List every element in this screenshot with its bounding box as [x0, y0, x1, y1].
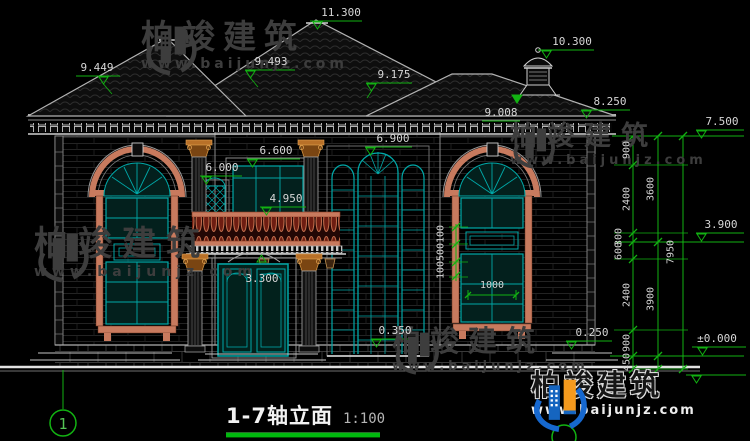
level-balcony-rail: 4.950 — [269, 192, 302, 205]
level-cornice-top: 7.500 — [705, 115, 738, 128]
dim-chain-2400b: 2400 — [622, 283, 633, 307]
dim-band-100a: 100 — [436, 225, 447, 243]
dim-band-100b: 100 — [436, 261, 447, 279]
window-sill — [98, 326, 176, 333]
drawing-title-block: 1-7轴立面1:100 — [226, 400, 385, 438]
drawing-title: 1-7轴立面 — [226, 404, 333, 428]
upper-center-window — [226, 158, 316, 218]
level-main-ridge: 11.300 — [321, 6, 361, 19]
level-right-eave: 8.250 — [593, 95, 626, 108]
level-right-roof-ridge: 9.175 — [377, 68, 410, 81]
left-roof — [28, 38, 246, 116]
entry-door — [212, 253, 296, 359]
site-logo: 柏竣建筑 www.baijunjz.com — [531, 371, 749, 418]
right-quoins — [587, 136, 595, 345]
level-porch-arch: 3.300 — [245, 272, 278, 285]
dim-window-width: 1000 — [480, 280, 504, 291]
level-left-plinth: 0.350 — [378, 324, 411, 337]
level-lattice-window: 6.000 — [205, 161, 238, 174]
brand-logo-icon — [531, 371, 587, 437]
level-upper-window: 6.600 — [259, 144, 292, 157]
dim-chain-900a: 900 — [622, 141, 633, 159]
level-center-roof: 9.493 — [254, 55, 287, 68]
drawing-scale: 1:100 — [343, 411, 385, 427]
level-right-plinth: 0.250 — [575, 326, 608, 339]
level-cupola-top: 10.300 — [552, 35, 592, 48]
cad-viewport: 柏竣建筑 www.baijunjz.com 柏竣建筑 www.baijunjz.… — [0, 0, 750, 441]
level-ground: ±0.000 — [697, 332, 737, 345]
level-right-roof-eave: 9.008 — [484, 106, 517, 119]
level-left-roof: 9.449 — [80, 61, 113, 74]
dim-chain-2400a: 2400 — [622, 187, 633, 211]
level-stair-arch: 6.900 — [376, 132, 409, 145]
dim-band-500: 500 — [436, 243, 447, 261]
dim-chain-3600: 3600 — [646, 177, 657, 201]
dim-chain-3900: 3900 — [646, 287, 657, 311]
left-quoins — [55, 136, 63, 345]
keystone — [132, 143, 143, 156]
title-underline — [226, 432, 380, 438]
level-second-floor: 3.900 — [704, 218, 737, 231]
dim-chain-600: 600 — [614, 242, 625, 260]
dim-chain-7950: 7950 — [666, 240, 677, 264]
cornice — [28, 115, 616, 134]
plinth — [55, 345, 595, 366]
axis-number-1: 1 — [58, 415, 67, 433]
dim-chain-900b: 900 — [622, 334, 633, 352]
